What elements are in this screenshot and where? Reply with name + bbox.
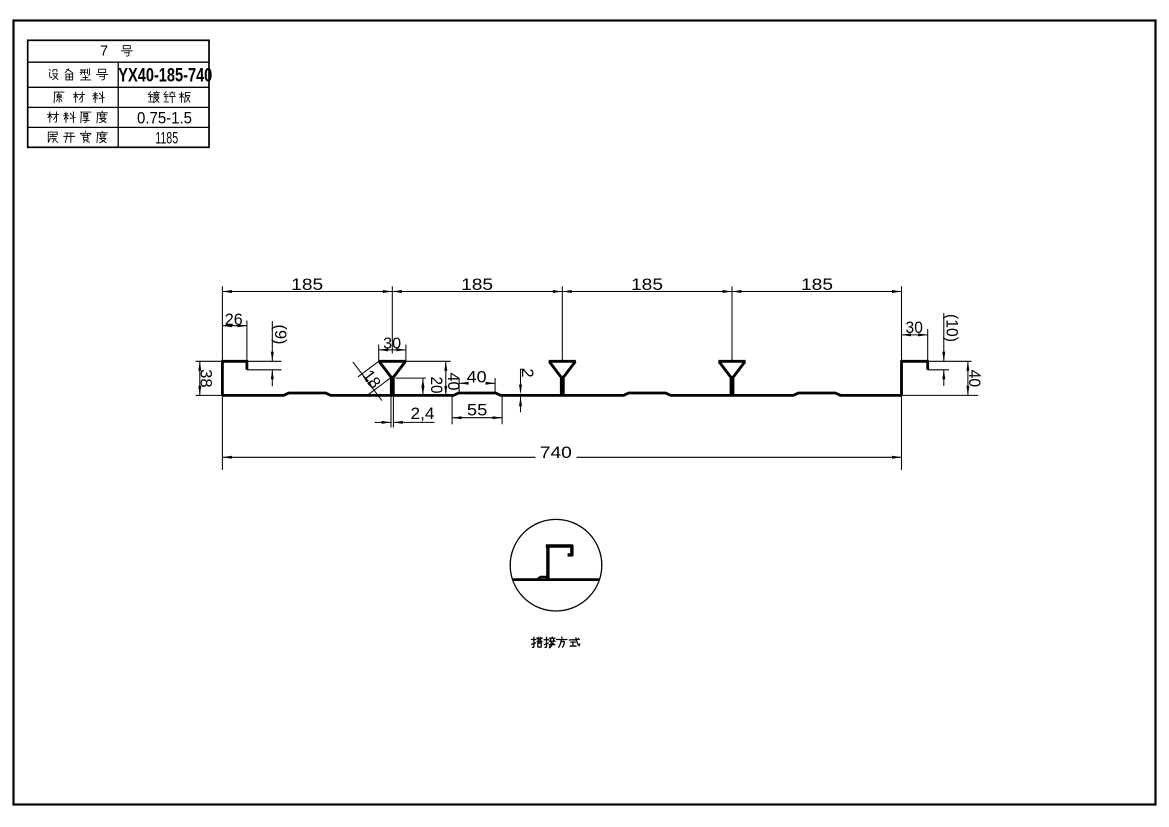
- svg-text:185: 185: [291, 276, 323, 294]
- svg-text:185: 185: [801, 276, 833, 294]
- svg-text:185: 185: [461, 276, 493, 294]
- svg-text:740: 740: [540, 444, 572, 462]
- svg-text:185: 185: [631, 276, 663, 294]
- svg-text:2: 2: [518, 368, 536, 377]
- svg-text:1185: 1185: [155, 129, 178, 147]
- svg-text:30: 30: [383, 335, 401, 352]
- svg-text:38: 38: [197, 369, 215, 388]
- svg-text:2,4: 2,4: [411, 405, 435, 423]
- svg-text:(9): (9): [271, 325, 289, 345]
- svg-text:(10): (10): [942, 314, 960, 342]
- svg-text:55: 55: [467, 401, 488, 419]
- svg-text:0.75-1.5: 0.75-1.5: [137, 110, 192, 128]
- svg-text:18: 18: [359, 367, 384, 392]
- svg-text:7: 7: [100, 44, 108, 60]
- svg-text:40: 40: [467, 368, 487, 386]
- svg-text:40: 40: [965, 370, 983, 388]
- svg-text:YX40-185-740: YX40-185-740: [118, 65, 212, 86]
- svg-text:20: 20: [427, 377, 445, 394]
- svg-text:30: 30: [906, 319, 923, 337]
- svg-text:26: 26: [225, 311, 243, 329]
